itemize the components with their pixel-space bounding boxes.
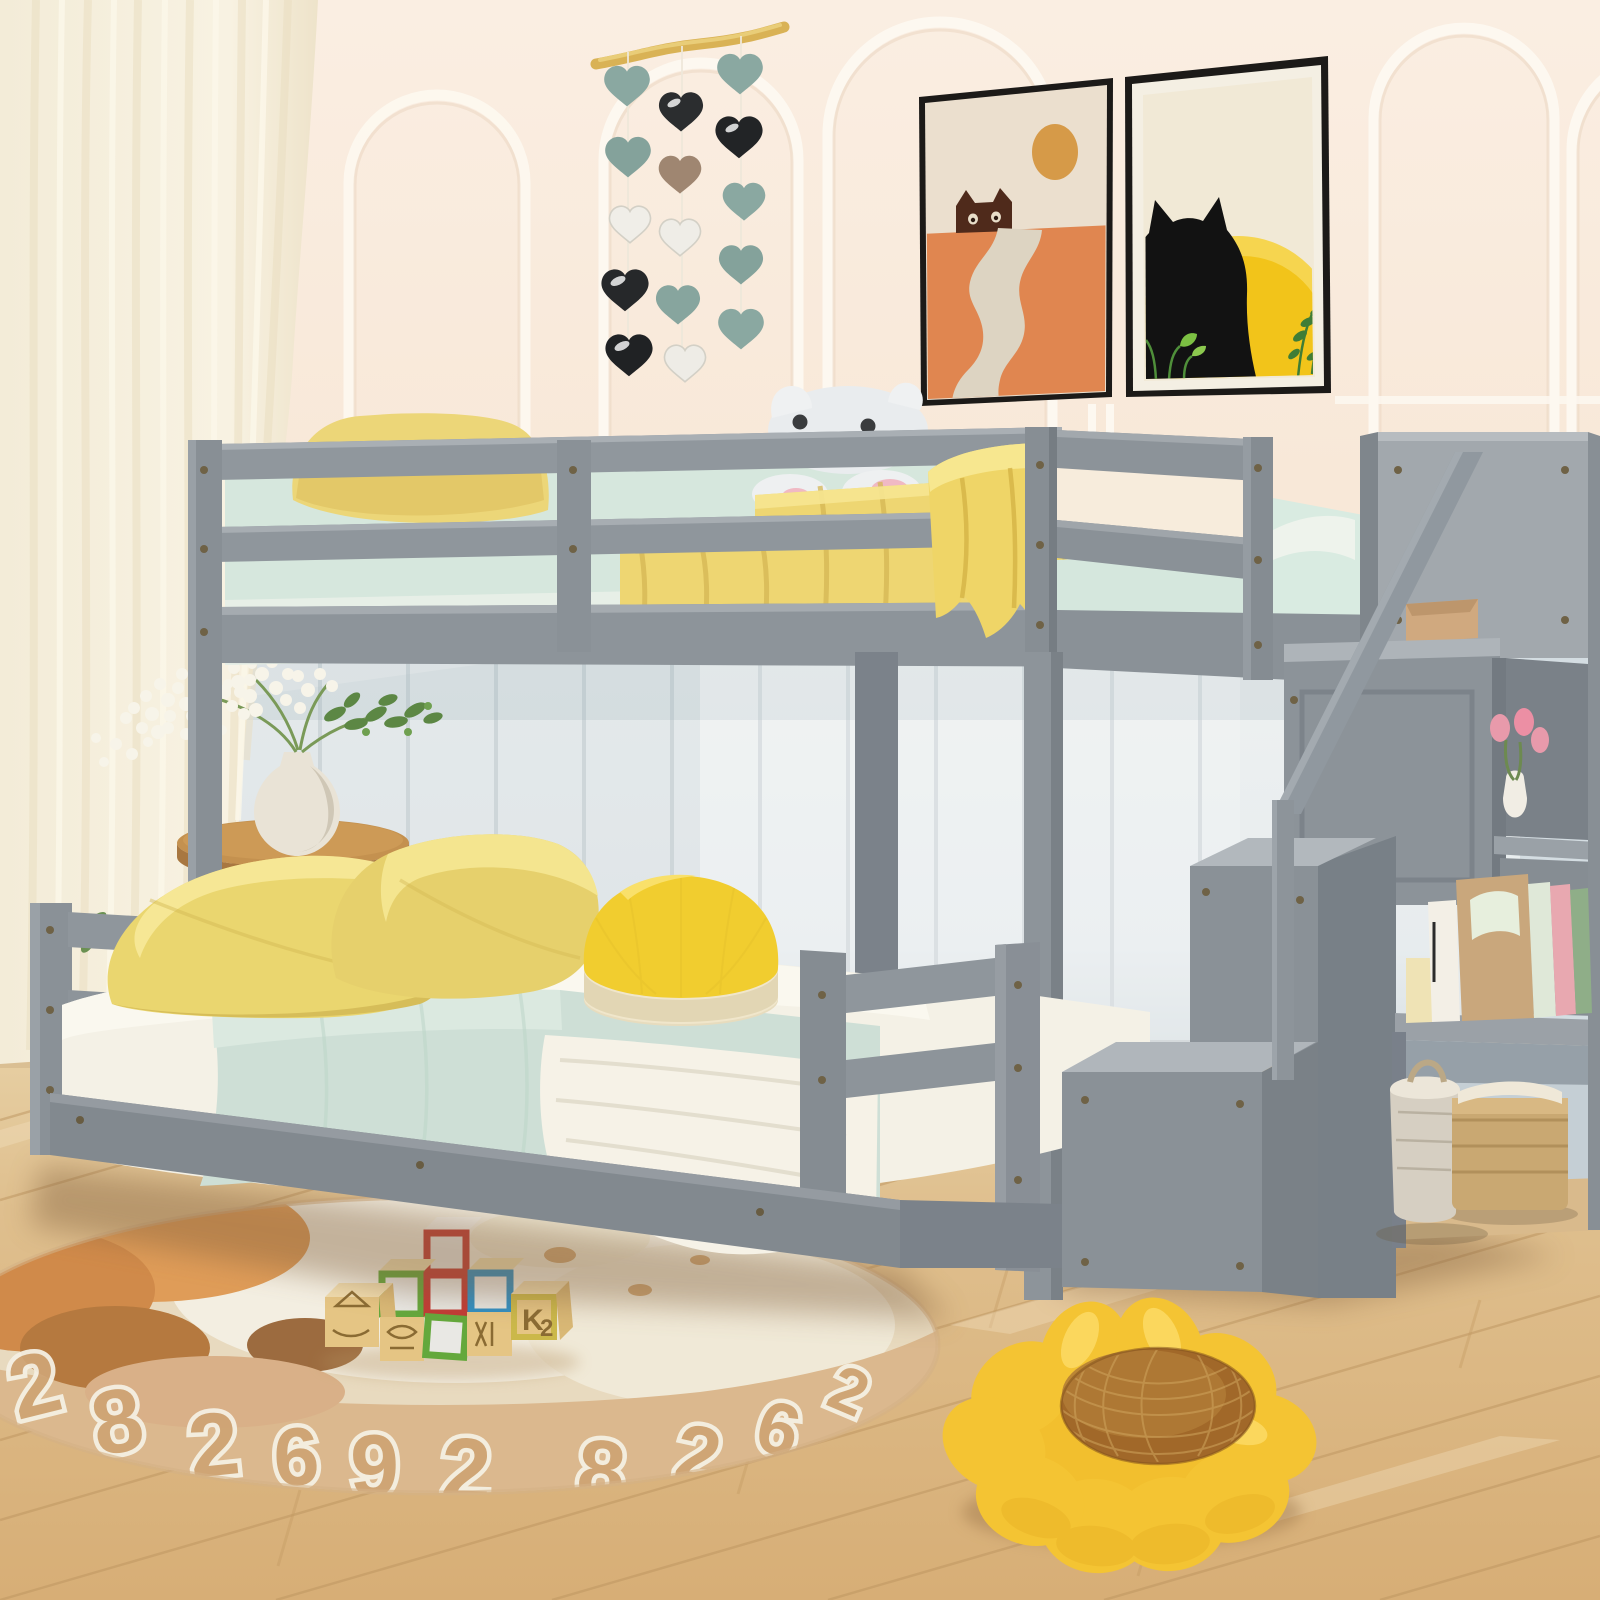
svg-text:2: 2: [540, 1315, 553, 1342]
